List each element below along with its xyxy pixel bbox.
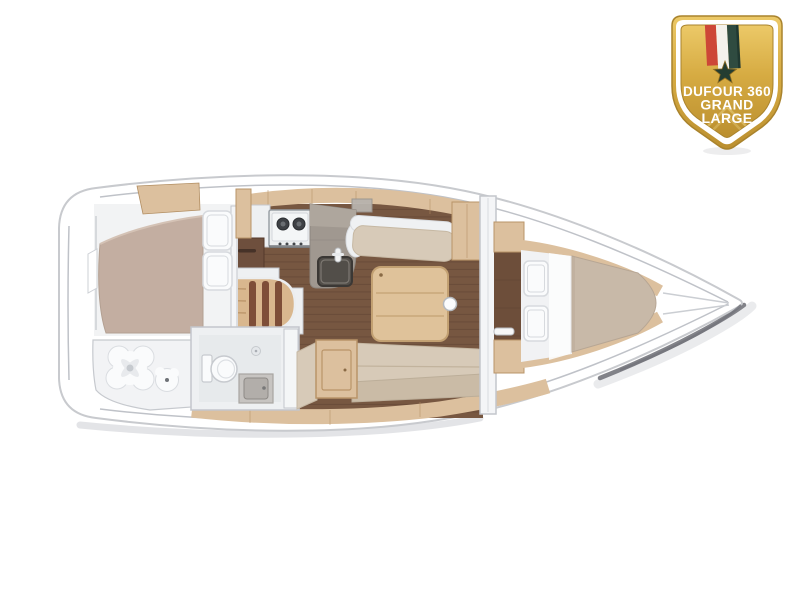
cabin-door-handle	[494, 328, 514, 335]
aft-technical-room	[93, 336, 192, 410]
boat-floorplan: DUFOUR 360 GRAND LARGE	[0, 0, 800, 600]
head-door	[284, 329, 298, 408]
settee-corner-seat	[297, 342, 317, 409]
stair-rails	[249, 281, 282, 328]
saloon-table	[372, 267, 457, 341]
badge-title-line3: LARGE	[702, 110, 753, 126]
aft-cabin-pillows	[203, 211, 232, 290]
sheet-runner	[549, 253, 570, 360]
yacht-layout-page: DUFOUR 360 GRAND LARGE	[0, 0, 800, 600]
galley-stove	[269, 210, 311, 248]
aft-wardrobe	[236, 189, 251, 238]
head-compartment	[191, 327, 299, 410]
shower-drain	[252, 347, 261, 356]
desk-groove	[238, 249, 256, 253]
dufour-badge: DUFOUR 360 GRAND LARGE	[672, 16, 782, 155]
forward-cabinet-bottom	[494, 340, 524, 373]
saloon-cabinet-top	[452, 202, 482, 260]
aft-cabin-top-shelf	[137, 183, 200, 214]
saloon-settee-top	[346, 215, 456, 262]
head-vanity-sink	[239, 374, 273, 403]
hull-stringer	[88, 249, 97, 293]
stowage-bag-large	[106, 346, 154, 390]
table-knob	[444, 298, 457, 311]
interior	[88, 183, 729, 425]
forward-cabinet-top	[494, 222, 524, 252]
saloon-cabinet-bottom	[316, 340, 357, 398]
aft-cabin	[88, 183, 251, 336]
badge-ribbon	[705, 21, 741, 72]
stowage-bag-small	[155, 367, 179, 392]
toilet	[202, 355, 237, 382]
